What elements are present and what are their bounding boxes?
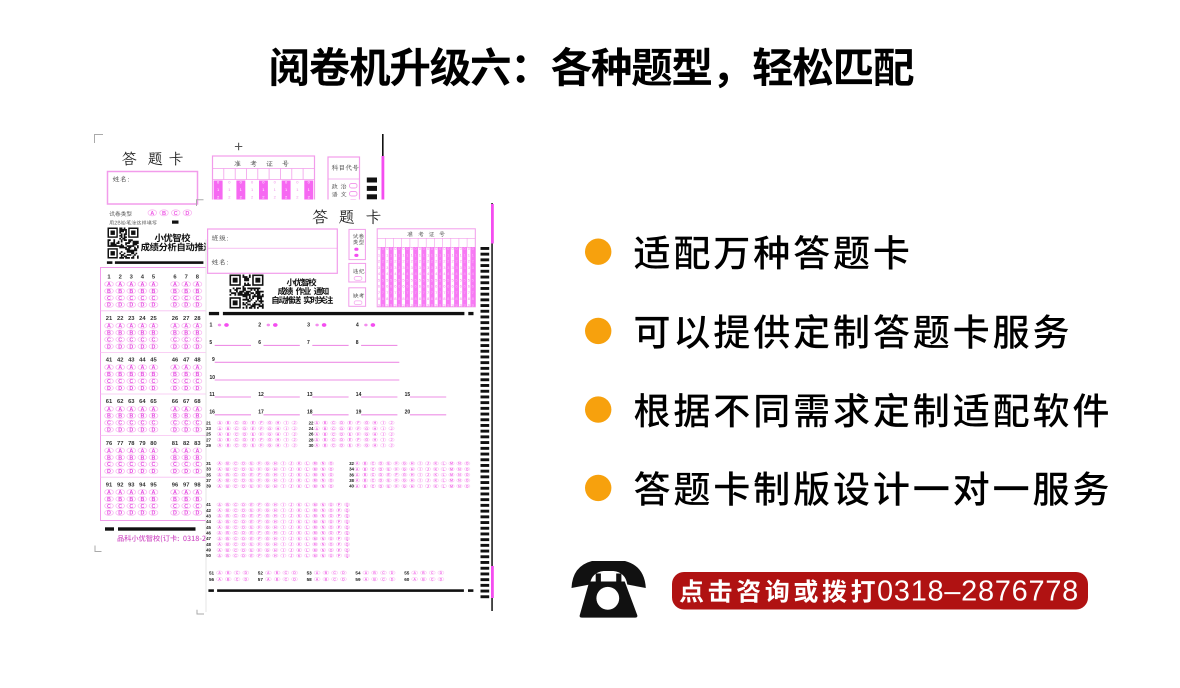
svg-text:B: B [107,331,111,337]
svg-text:B: B [227,444,230,448]
svg-text:H: H [374,444,377,448]
svg-text:I: I [420,467,421,471]
svg-text:J: J [427,467,429,471]
svg-text:A: A [107,448,111,454]
svg-text:35: 35 [206,472,211,477]
svg-text:Q: Q [346,503,349,507]
svg-text:A: A [107,365,111,371]
svg-text:C: C [234,462,237,466]
svg-text:M: M [314,526,317,530]
svg-text:C: C [234,520,237,524]
svg-text:H: H [277,421,280,425]
svg-text:K: K [434,467,437,471]
svg-text:C: C [152,296,156,302]
svg-text:B: B [195,455,199,461]
svg-text:J: J [290,473,292,477]
svg-text:K: K [298,531,301,535]
svg-text:A: A [140,324,144,330]
svg-text:40: 40 [349,484,354,489]
svg-text:H: H [277,444,280,448]
svg-text:55: 55 [404,570,410,575]
svg-text:Q: Q [346,514,349,518]
svg-text:D: D [242,467,245,471]
svg-text:C: C [184,462,188,468]
svg-text:A: A [315,421,318,425]
svg-text:C: C [382,571,385,575]
svg-text:9: 9 [212,357,215,363]
svg-text:D: D [391,577,394,581]
svg-text:49: 49 [206,548,211,553]
svg-text:48: 48 [206,542,211,547]
svg-text:C: C [184,337,188,343]
svg-text:18: 18 [307,410,313,416]
svg-text:K: K [298,543,301,547]
svg-text:J: J [290,520,292,524]
svg-text:H: H [374,438,377,442]
svg-text:A: A [140,282,144,288]
svg-text:D: D [342,571,345,575]
svg-text:G: G [266,554,269,558]
svg-text:O: O [466,473,469,477]
svg-text:G: G [403,484,406,488]
svg-text:D: D [379,462,382,466]
svg-text:D: D [185,211,189,217]
svg-text:A: A [184,490,188,496]
svg-text:O: O [330,462,333,466]
svg-text:A: A [356,462,359,466]
svg-text:B: B [226,503,229,507]
svg-text:B: B [140,414,144,420]
svg-text:C: C [372,473,375,477]
svg-text:53: 53 [307,570,313,575]
svg-text:K: K [298,503,301,507]
svg-text:C: C [129,379,133,385]
svg-text:I: I [286,444,287,448]
svg-text:B: B [107,289,111,295]
svg-text:33: 33 [206,467,211,472]
svg-text:J: J [391,421,393,425]
svg-text:27: 27 [206,437,211,442]
svg-text:I: I [283,526,284,530]
svg-text:D: D [244,571,247,575]
svg-text:D: D [152,469,156,475]
svg-text:91: 91 [106,482,113,488]
svg-text:C: C [284,571,287,575]
svg-text:D: D [379,484,382,488]
svg-text:Q: Q [346,526,349,530]
svg-text:A: A [118,407,122,413]
svg-text:A: A [140,407,144,413]
svg-text:O: O [466,467,469,471]
svg-text:59: 59 [355,577,361,582]
svg-text:B: B [226,554,229,558]
svg-text:D: D [195,303,199,309]
svg-text:C: C [129,337,133,343]
svg-text:G: G [266,531,269,535]
svg-text:C: C [234,473,237,477]
svg-text:31: 31 [206,461,211,466]
svg-text:2: 2 [251,195,254,200]
svg-text:H: H [274,554,277,558]
svg-text:D: D [184,303,188,309]
svg-text:2: 2 [258,323,261,329]
svg-text:C: C [333,577,336,581]
svg-text:N: N [458,484,461,488]
svg-text:44: 44 [206,519,211,524]
svg-text:C: C [235,438,238,442]
svg-text:22: 22 [117,316,123,322]
svg-text:B: B [226,548,229,552]
svg-text:B: B [226,467,229,471]
svg-text:A: A [315,427,318,431]
svg-text:D: D [152,386,156,392]
svg-text:B: B [226,520,229,524]
svg-text:G: G [266,537,269,541]
svg-text:44: 44 [139,358,146,364]
svg-text:G: G [268,421,271,425]
svg-text:B: B [140,331,144,337]
svg-text:B: B [226,537,229,541]
svg-text:52: 52 [258,570,264,575]
svg-text:M: M [314,554,317,558]
svg-text:D: D [243,432,246,436]
svg-text:A: A [118,282,122,288]
svg-text:N: N [458,467,461,471]
svg-text:C: C [107,421,111,427]
svg-text:J: J [290,531,292,535]
svg-text:H: H [374,421,377,425]
svg-text:G: G [403,479,406,483]
svg-text:B: B [118,455,122,461]
svg-text:D: D [129,344,133,350]
svg-text:O: O [330,467,333,471]
svg-text:60: 60 [404,577,410,582]
svg-text:C: C [284,577,287,581]
svg-text:J: J [290,509,292,513]
svg-text:62: 62 [117,399,123,405]
svg-text:B: B [184,414,188,420]
svg-text:H: H [274,479,277,483]
svg-text:N: N [322,484,325,488]
svg-text:D: D [242,479,245,483]
svg-text:4: 4 [356,323,359,329]
svg-text:C: C [152,379,156,385]
svg-text:I: I [283,514,284,518]
svg-text:C: C [234,526,237,530]
svg-text:79: 79 [139,441,146,447]
svg-text:D: D [243,438,246,442]
svg-text:D: D [140,469,144,475]
svg-text:64: 64 [139,399,146,405]
svg-text:I: I [283,467,284,471]
svg-text:B: B [107,455,111,461]
svg-text:I: I [420,479,421,483]
svg-text:N: N [458,479,461,483]
svg-text:A: A [129,407,133,413]
svg-text:B: B [227,421,230,425]
svg-text:C: C [235,427,238,431]
svg-text:24: 24 [309,426,314,431]
svg-text:38: 38 [349,478,354,483]
svg-text:D: D [340,438,343,442]
svg-text:J: J [391,444,393,448]
svg-text:C: C [107,296,111,302]
svg-text:Q: Q [346,520,349,524]
svg-text:H: H [274,484,277,488]
svg-text:A: A [107,407,111,413]
svg-text:A: A [173,448,177,454]
svg-text:5: 5 [152,274,156,280]
svg-text:B: B [226,514,229,518]
svg-text:A: A [118,448,122,454]
svg-text:7: 7 [185,274,188,280]
svg-text:C: C [140,337,144,343]
svg-text:G: G [266,509,269,513]
svg-text:C: C [184,296,188,302]
svg-text:B: B [195,497,199,503]
svg-text:C: C [235,444,238,448]
svg-text:D: D [293,577,296,581]
svg-text:H: H [277,432,280,436]
svg-text:J: J [294,438,296,442]
svg-text:Q: Q [346,531,349,535]
svg-text:G: G [365,444,368,448]
svg-text:B: B [140,372,144,378]
svg-text:C: C [195,504,199,510]
svg-text:C: C [236,577,239,581]
svg-text:50: 50 [206,553,211,558]
svg-text:Q: Q [346,548,349,552]
svg-text:C: C [234,509,237,513]
svg-text:J: J [290,526,292,530]
svg-text:B: B [173,455,177,461]
svg-text:B: B [195,289,199,295]
svg-text:93: 93 [128,482,135,488]
svg-text:C: C [184,379,188,385]
svg-text:C: C [195,462,199,468]
svg-text:D: D [242,543,245,547]
svg-text:15: 15 [405,392,411,398]
svg-text:B: B [325,577,328,581]
svg-text:G: G [266,548,269,552]
svg-text:I: I [283,484,284,488]
svg-text:C: C [173,296,177,302]
svg-text:A: A [118,365,122,371]
svg-text:A: A [218,577,221,581]
svg-text:81: 81 [172,441,179,447]
svg-text:B: B [325,571,328,575]
svg-text:56: 56 [209,577,215,582]
svg-text:C: C [140,379,144,385]
svg-text:I: I [286,421,287,425]
svg-text:O: O [330,526,333,530]
svg-text:58: 58 [307,577,313,582]
svg-text:K: K [434,484,437,488]
svg-text:94: 94 [139,482,146,488]
svg-text:0: 0 [274,180,277,185]
svg-text:C: C [235,432,238,436]
svg-text:D: D [340,427,343,431]
svg-text:D: D [118,511,122,517]
svg-text:C: C [129,462,133,468]
svg-text:C: C [195,296,199,302]
svg-text:B: B [173,289,177,295]
svg-text:B: B [184,455,188,461]
svg-text:B: B [227,438,230,442]
svg-text:B: B [184,497,188,503]
svg-text:M: M [314,543,317,547]
svg-text:D: D [242,514,245,518]
svg-text:43: 43 [206,514,211,519]
svg-text:C: C [107,462,111,468]
svg-text:M: M [314,462,317,466]
svg-text:1: 1 [107,274,111,280]
svg-text:A: A [118,490,122,496]
svg-text:C: C [118,421,122,427]
svg-text:K: K [298,509,301,513]
svg-text:65: 65 [150,399,157,405]
svg-text:A: A [107,324,111,330]
svg-text:A: A [195,324,199,330]
svg-text:A: A [129,448,133,454]
svg-text:A: A [356,467,359,471]
svg-text:K: K [298,462,301,466]
svg-text:B: B [184,331,188,337]
svg-text:A: A [184,324,188,330]
svg-text:A: A [315,432,318,436]
svg-text:K: K [298,537,301,541]
svg-text:B: B [364,484,367,488]
svg-text:B: B [140,289,144,295]
svg-text:D: D [243,427,246,431]
svg-text:C: C [173,462,177,468]
svg-text:B: B [226,462,229,466]
svg-text:54: 54 [355,570,361,575]
svg-text:J: J [391,432,393,436]
svg-text:46: 46 [172,358,179,364]
svg-text:K: K [434,462,437,466]
svg-text:B: B [324,438,327,442]
svg-text:M: M [314,479,317,483]
svg-text:N: N [322,526,325,530]
svg-text:A: A [107,282,111,288]
svg-text:17: 17 [258,410,264,416]
svg-text:O: O [330,503,333,507]
svg-text:I: I [383,438,384,442]
svg-text:D: D [342,577,345,581]
svg-text:A: A [195,282,199,288]
svg-text:2: 2 [119,274,122,280]
svg-text:N: N [322,479,325,483]
svg-text:D: D [243,421,246,425]
svg-text:12: 12 [258,392,264,398]
svg-text:A: A [218,554,221,558]
svg-text:M: M [450,467,453,471]
svg-text:0: 0 [251,180,254,185]
svg-text:J: J [290,554,292,558]
svg-text:I: I [283,473,284,477]
svg-text:G: G [403,473,406,477]
svg-text:Q: Q [346,554,349,558]
svg-text:27: 27 [183,316,189,322]
svg-text:J: J [391,427,393,431]
svg-text:N: N [322,520,325,524]
svg-text:H: H [411,473,414,477]
svg-text:A: A [152,282,156,288]
svg-text:G: G [266,503,269,507]
svg-text:C: C [431,571,434,575]
svg-text:O: O [466,479,469,483]
svg-text:1: 1 [296,187,299,192]
svg-text:34: 34 [349,467,354,472]
svg-text:A: A [184,407,188,413]
svg-text:4: 4 [141,274,145,280]
svg-text:G: G [268,427,271,431]
svg-text:N: N [322,531,325,535]
svg-text:B: B [226,484,229,488]
svg-text:M: M [314,537,317,541]
svg-text:M: M [450,462,453,466]
svg-text:A: A [118,324,122,330]
svg-text:A: A [152,365,156,371]
svg-text:C: C [118,379,122,385]
svg-text:B: B [129,331,133,337]
svg-text:B: B [195,331,199,337]
svg-text:8: 8 [196,274,200,280]
svg-text:J: J [290,514,292,518]
svg-text:1: 1 [251,187,254,192]
svg-text:B: B [107,414,111,420]
svg-text:O: O [330,514,333,518]
svg-text:A: A [152,448,156,454]
svg-text:D: D [140,386,144,392]
svg-text:I: I [286,432,287,436]
svg-text:C: C [333,571,336,575]
svg-text:D: D [118,386,122,392]
svg-text:H: H [274,537,277,541]
svg-text:A: A [152,407,156,413]
svg-text:C: C [173,421,177,427]
svg-text:D: D [118,344,122,350]
svg-text:D: D [129,303,133,309]
svg-text:46: 46 [206,531,211,536]
svg-text:A: A [218,520,221,524]
svg-text:C: C [152,421,156,427]
svg-text:51: 51 [209,570,215,575]
svg-text:M: M [314,520,317,524]
svg-text:A: A [218,484,221,488]
svg-text:47: 47 [183,358,189,364]
svg-text:21: 21 [206,420,211,425]
svg-text:B: B [140,455,144,461]
svg-text:G: G [268,438,271,442]
svg-text:A: A [218,531,221,535]
svg-text:C: C [129,296,133,302]
svg-text:J: J [427,462,429,466]
svg-text:47: 47 [206,536,211,541]
svg-text:A: A [195,448,199,454]
svg-text:A: A [365,577,368,581]
svg-text:B: B [226,543,229,547]
svg-text:K: K [298,554,301,558]
svg-text:B: B [173,331,177,337]
svg-text:J: J [294,427,296,431]
svg-text:D: D [242,548,245,552]
svg-text:C: C [140,296,144,302]
svg-text:D: D [242,473,245,477]
svg-text:G: G [403,467,406,471]
svg-text:D: D [440,571,443,575]
